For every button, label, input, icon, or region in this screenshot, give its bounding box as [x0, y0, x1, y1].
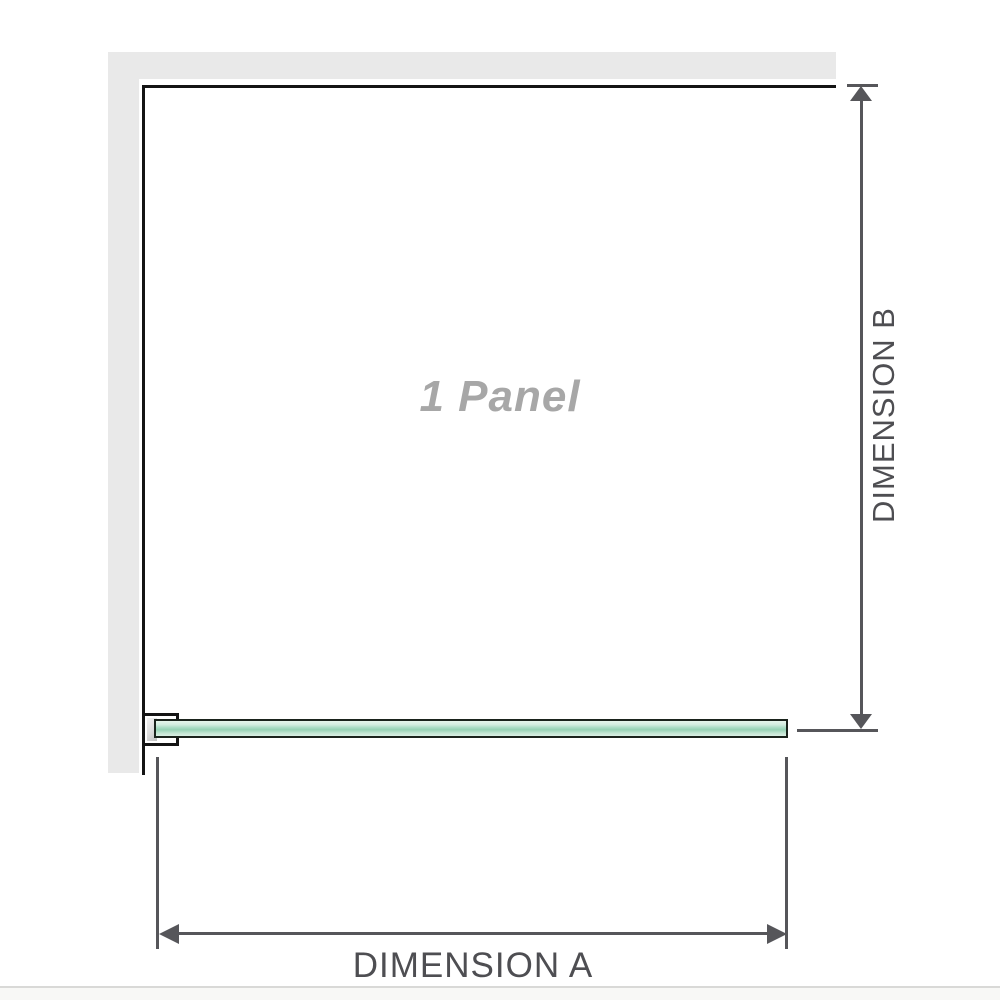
panel-top-border: [142, 85, 836, 88]
dimension-b-arrow-down-icon: [850, 714, 872, 729]
dimension-b-arrow-up-icon: [850, 86, 872, 101]
dimension-a-arrow-left-icon: [159, 924, 179, 944]
dimension-b-label: DIMENSION B: [866, 307, 902, 523]
dimension-b-line: [860, 99, 863, 718]
dimension-a-line: [178, 932, 768, 935]
dimension-a-extension-left: [156, 757, 159, 949]
panel-left-border: [142, 85, 145, 775]
wall-top: [108, 52, 836, 79]
dimension-a-arrow-right-icon: [767, 924, 787, 944]
panel-area-label: 1 Panel: [419, 372, 580, 422]
glass-panel-bar: [154, 719, 788, 738]
bottom-strip: [0, 988, 1000, 1000]
dimension-a-extension-right: [785, 757, 788, 949]
dimension-a-label: DIMENSION A: [353, 946, 593, 986]
dimension-b-cap-bottom: [797, 729, 878, 732]
diagram-canvas: 1 Panel DIMENSION B DIMENSION A: [0, 0, 1000, 1000]
wall-left: [108, 52, 139, 773]
